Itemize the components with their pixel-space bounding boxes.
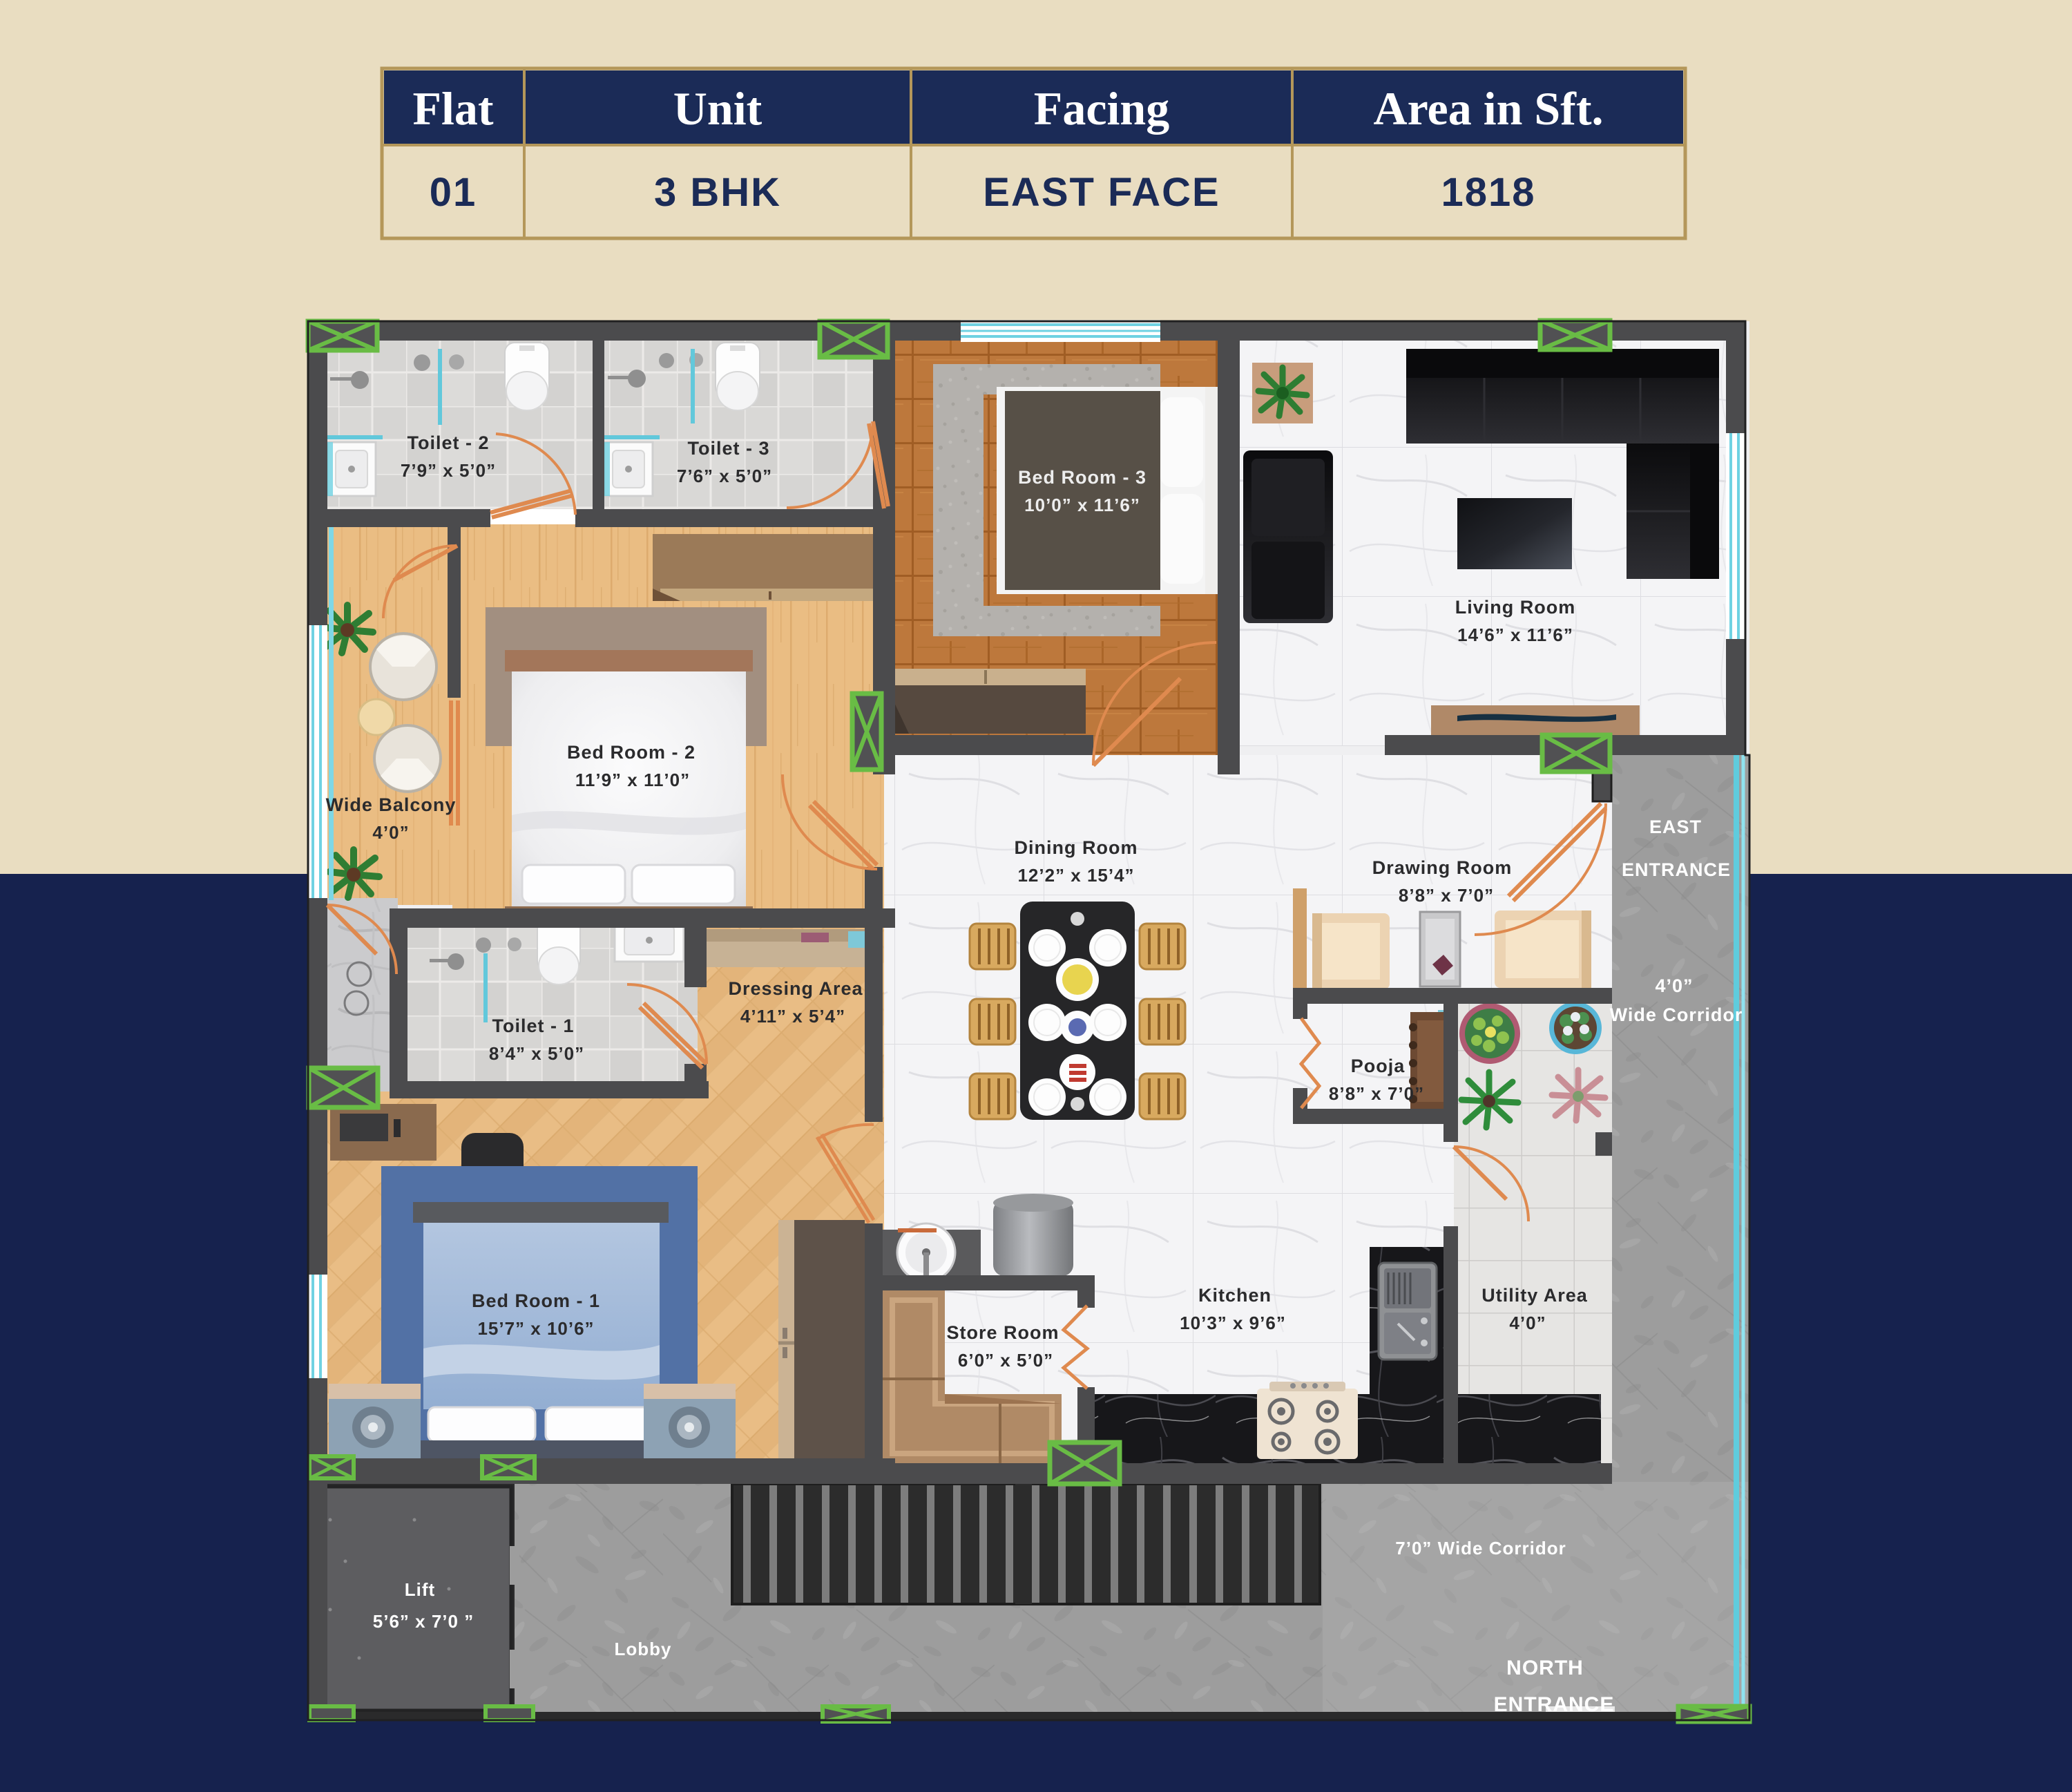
- svg-text:Lobby: Lobby: [615, 1639, 672, 1659]
- svg-text:10’0” x 11’6”: 10’0” x 11’6”: [1024, 495, 1140, 515]
- svg-text:Wide Corridor: Wide Corridor: [1610, 1004, 1743, 1025]
- svg-text:Drawing Room: Drawing Room: [1372, 857, 1513, 878]
- svg-text:12’2” x 15’4”: 12’2” x 15’4”: [1017, 865, 1134, 886]
- svg-text:4’0”: 4’0”: [1509, 1313, 1546, 1333]
- svg-text:ENTRANCE: ENTRANCE: [1622, 859, 1731, 880]
- svg-text:4’11” x 5’4”: 4’11” x 5’4”: [740, 1006, 845, 1027]
- svg-text:Facing: Facing: [1034, 82, 1169, 135]
- svg-text:Toilet - 3: Toilet - 3: [687, 438, 769, 459]
- svg-text:14’6” x 11’6”: 14’6” x 11’6”: [1457, 625, 1573, 645]
- svg-text:7’6” x 5’0”: 7’6” x 5’0”: [677, 466, 772, 486]
- svg-text:Wide Balcony: Wide Balcony: [326, 794, 457, 815]
- svg-text:Area in Sft.: Area in Sft.: [1373, 82, 1603, 135]
- svg-text:EAST: EAST: [1649, 817, 1702, 837]
- svg-text:15’7” x 10’6”: 15’7” x 10’6”: [477, 1318, 594, 1339]
- svg-text:8’8” x 7’0”: 8’8” x 7’0”: [1399, 885, 1494, 906]
- svg-text:Unit: Unit: [673, 82, 762, 135]
- svg-text:5’6” x 7’0 ”: 5’6” x 7’0 ”: [373, 1611, 474, 1632]
- svg-text:EAST FACE: EAST FACE: [983, 170, 1220, 215]
- svg-text:1818: 1818: [1441, 170, 1535, 215]
- svg-text:Pooja: Pooja: [1351, 1056, 1406, 1076]
- svg-text:6’0” x 5’0”: 6’0” x 5’0”: [958, 1350, 1053, 1371]
- svg-text:Lift: Lift: [405, 1579, 435, 1600]
- svg-text:Bed Room - 3: Bed Room - 3: [1018, 467, 1147, 488]
- svg-text:NORTH: NORTH: [1506, 1657, 1584, 1679]
- svg-text:Living Room: Living Room: [1455, 597, 1576, 618]
- svg-text:Bed Room - 1: Bed Room - 1: [472, 1290, 600, 1311]
- svg-text:Flat: Flat: [412, 82, 493, 135]
- svg-text:4’0”: 4’0”: [1655, 975, 1693, 996]
- svg-text:Dining Room: Dining Room: [1015, 837, 1138, 858]
- svg-text:01: 01: [430, 170, 477, 215]
- svg-text:Dressing Area: Dressing Area: [728, 978, 863, 999]
- svg-text:Toilet - 1: Toilet - 1: [492, 1016, 574, 1036]
- svg-text:4’0”: 4’0”: [372, 822, 409, 843]
- svg-text:Toilet - 2: Toilet - 2: [407, 432, 489, 453]
- svg-text:7’0” Wide Corridor: 7’0” Wide Corridor: [1395, 1538, 1566, 1559]
- svg-text:Kitchen: Kitchen: [1198, 1285, 1272, 1306]
- svg-text:Bed Room - 2: Bed Room - 2: [567, 742, 696, 763]
- svg-text:Store Room: Store Room: [946, 1322, 1059, 1343]
- svg-text:8’8” x 7’0”: 8’8” x 7’0”: [1329, 1083, 1424, 1104]
- svg-text:Utility Area: Utility Area: [1481, 1285, 1588, 1306]
- svg-text:7’9” x 5’0”: 7’9” x 5’0”: [401, 460, 496, 481]
- svg-text:11’9” x 11’0”: 11’9” x 11’0”: [575, 770, 690, 790]
- svg-text:ENTRANCE: ENTRANCE: [1494, 1693, 1615, 1716]
- svg-text:8’4” x 5’0”: 8’4” x 5’0”: [489, 1043, 584, 1064]
- svg-text:10’3” x 9’6”: 10’3” x 9’6”: [1180, 1313, 1286, 1333]
- svg-text:3 BHK: 3 BHK: [654, 170, 781, 215]
